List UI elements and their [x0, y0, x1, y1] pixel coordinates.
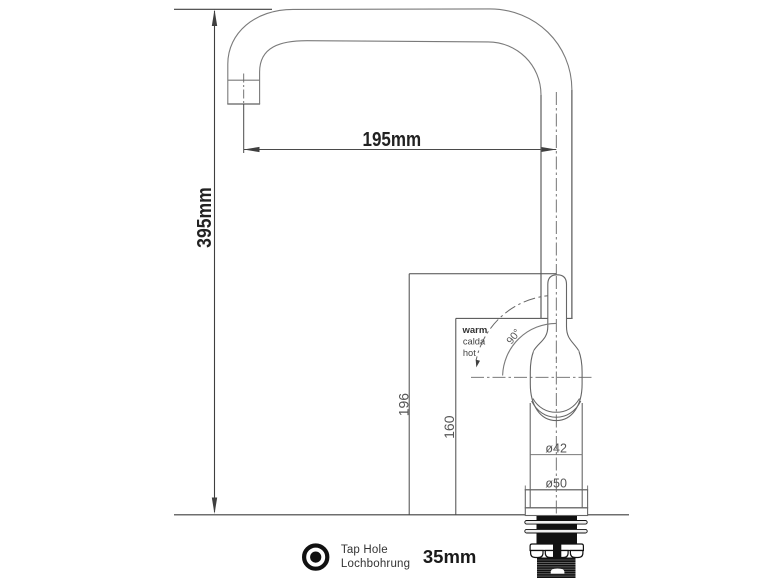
svg-text:Tap Hole: Tap Hole	[341, 544, 388, 556]
svg-text:warm: warm	[462, 325, 488, 336]
svg-text:196: 196	[395, 393, 411, 417]
svg-text:195mm: 195mm	[363, 128, 422, 151]
svg-text:calda: calda	[463, 337, 486, 347]
svg-text:ø50: ø50	[545, 476, 567, 490]
svg-text:ø42: ø42	[545, 441, 567, 455]
svg-text:hot: hot	[463, 348, 476, 358]
svg-text:395mm: 395mm	[193, 187, 215, 248]
svg-text:Lochbohrung: Lochbohrung	[341, 558, 410, 570]
svg-text:160: 160	[441, 415, 457, 439]
svg-text:35mm: 35mm	[423, 546, 476, 567]
